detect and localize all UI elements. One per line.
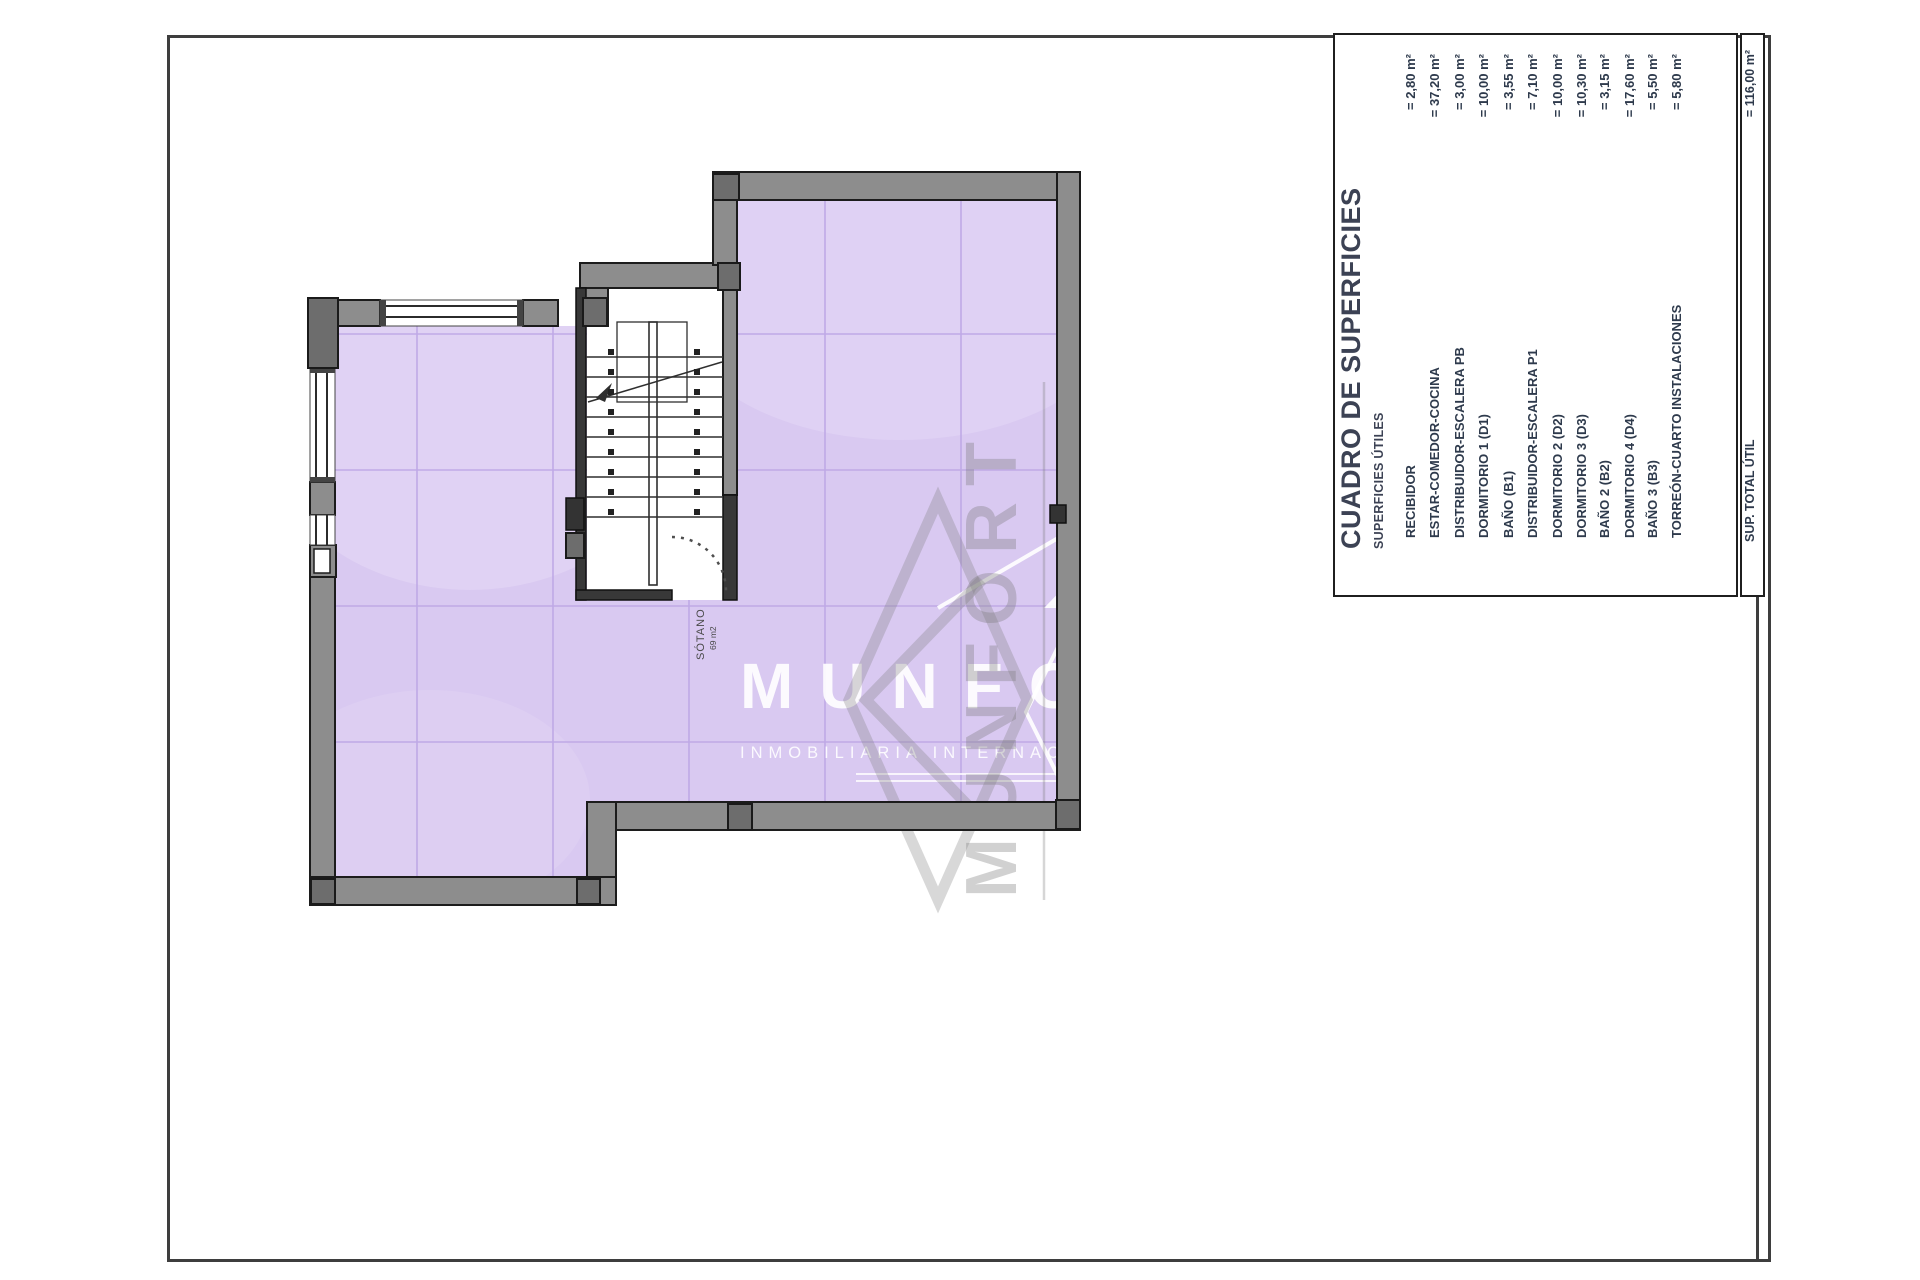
surface-value: = 2,80 m² [1403,54,1418,110]
surface-label: DORMITORIO 3 (D3) [1574,414,1589,538]
surface-value: = 10,00 m² [1476,54,1491,117]
surface-value: = 10,30 m² [1574,54,1589,117]
table-subtitle: SUPERFICIES ÚTILES [1372,379,1388,549]
window-left-large [310,368,335,482]
surface-row: BAÑO 2 (B2) = 3,15 m² [1597,54,1619,538]
surface-label: ESTAR-COMEDOR-COCINA [1427,367,1442,538]
surface-label: BAÑO 2 (B2) [1597,460,1612,538]
total-label: SUP. TOTAL ÚTIL [1743,439,1763,542]
surface-value: = 3,15 m² [1597,54,1612,110]
surface-value: = 37,20 m² [1427,54,1442,117]
surface-row: RECIBIDOR = 2,80 m² [1403,54,1425,538]
surface-row: DORMITORIO 4 (D4) = 17,60 m² [1622,54,1644,538]
surface-row: BAÑO 3 (B3) = 5,50 m² [1645,54,1667,538]
surface-label: DISTRIBUIDOR-ESCALERA P1 [1525,349,1540,538]
surface-row: DORMITORIO 3 (D3) = 10,30 m² [1574,54,1596,538]
surface-label: BAÑO (B1) [1501,471,1516,538]
surface-value: = 3,00 m² [1452,54,1467,110]
surface-label: RECIBIDOR [1403,465,1418,538]
surface-row: DORMITORIO 2 (D2) = 10,00 m² [1550,54,1572,538]
window-top [380,300,523,326]
door-jamb-block [566,498,584,530]
table-title: CUADRO DE SUPERFICIES [1336,217,1376,549]
surface-value: = 7,10 m² [1525,54,1540,110]
surface-row: ESTAR-COMEDOR-COCINA = 37,20 m² [1427,54,1449,538]
surface-value: = 3,55 m² [1501,54,1516,110]
surface-value: = 5,50 m² [1645,54,1660,110]
surface-value: = 5,80 m² [1669,54,1684,110]
watermark-tagline-text: INMOBILIARIA INTERNACIONAL [740,744,1144,762]
surface-row: BAÑO (B1) = 3,55 m² [1501,54,1523,538]
surface-row: DORMITORIO 1 (D1) = 10,00 m² [1476,54,1498,538]
staircase [586,322,723,585]
total-row: SUP. TOTAL ÚTIL = 116,00 m² [1743,50,1763,542]
surface-label: DISTRIBUIDOR-ESCALERA PB [1452,347,1467,538]
door-swing-arc [672,537,726,591]
total-value: = 116,00 m² [1743,50,1763,117]
surface-label: BAÑO 3 (B3) [1645,460,1660,538]
surface-label: DORMITORIO 4 (D4) [1622,414,1637,538]
surface-row: DISTRIBUIDOR-ESCALERA PB = 3,00 m² [1452,54,1474,538]
surface-row: TORREÓN-CUARTO INSTALACIONES = 5,80 m² [1669,54,1691,538]
room-label-sotano: SÓTANO [694,608,707,660]
stair-tread-dots [608,349,700,515]
wall-notch-block [1050,505,1066,523]
surface-value: = 17,60 m² [1622,54,1637,117]
surface-label: DORMITORIO 1 (D1) [1476,414,1491,538]
surface-label: DORMITORIO 2 (D2) [1550,414,1565,538]
surface-row: DISTRIBUIDOR-ESCALERA P1 = 7,10 m² [1525,54,1547,538]
surface-label: TORREÓN-CUARTO INSTALACIONES [1669,305,1684,538]
room-area-label: 69 m2 [708,626,718,650]
surface-value: = 10,00 m² [1550,54,1565,117]
